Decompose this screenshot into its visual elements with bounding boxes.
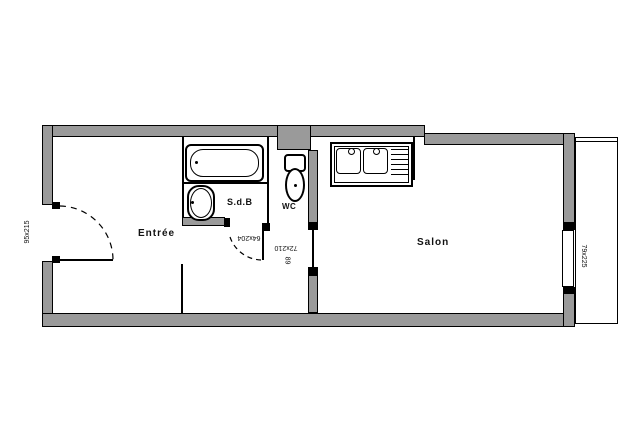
bathroom-west-wall (182, 137, 184, 217)
salon-door-bottom-jamb (308, 267, 318, 275)
dim-salon-door: 72x210 (264, 242, 308, 252)
kitchen-drainboard (391, 149, 408, 175)
entrance-door-arc (60, 206, 113, 260)
kitchen-partition (413, 137, 415, 180)
window-bottom-jamb (563, 287, 575, 294)
toilet-dot (294, 184, 297, 187)
top-wall-right (424, 133, 575, 145)
entrance-door-top-jamb (52, 202, 60, 209)
corridor-wall-lower (308, 275, 318, 313)
room-label-entree: Entrée (138, 228, 175, 239)
dim-bathroom-door: 64x204 (227, 232, 271, 242)
salon-door-top-jamb (308, 222, 318, 230)
duct-niche-block (277, 125, 311, 150)
dim-balcony-window: 79x225 (578, 234, 588, 278)
room-label-wc: WC (282, 202, 296, 211)
left-wall-upper (42, 125, 53, 205)
bathtub-platform-line (184, 182, 268, 184)
room-label-salon: Salon (417, 237, 449, 248)
bathroom-wall-jamb (224, 218, 230, 227)
door-arcs-layer (0, 0, 640, 447)
bathtub-drain-dot (195, 161, 198, 164)
entry-stub-wall (181, 264, 183, 313)
kitchen-tap-right-icon (373, 148, 380, 155)
window-frame (562, 230, 574, 287)
bathroom-door-hinge (262, 223, 270, 231)
bottom-wall (42, 313, 575, 327)
corridor-wall-upper (308, 150, 318, 223)
sink-tap-dot (191, 201, 194, 204)
balcony-outline (575, 137, 618, 324)
dim-salon-door-width: 89 (283, 254, 292, 268)
window-top-jamb (563, 223, 575, 230)
right-wall-upper (563, 133, 575, 223)
room-label-sdb: S.d.B (227, 197, 253, 207)
bathroom-east-wall (267, 137, 269, 223)
floor-plan: Entrée S.d.B WC Salon 95x215 64x204 72x2… (0, 0, 640, 447)
balcony-inner-line (575, 141, 618, 142)
kitchen-tap-left-icon (348, 148, 355, 155)
top-wall-left (42, 125, 425, 137)
dim-entrance-door: 95x215 (23, 210, 33, 254)
salon-door-leaf (312, 230, 314, 268)
entrance-door-leaf (57, 259, 113, 261)
bathtub-inner (190, 149, 259, 177)
